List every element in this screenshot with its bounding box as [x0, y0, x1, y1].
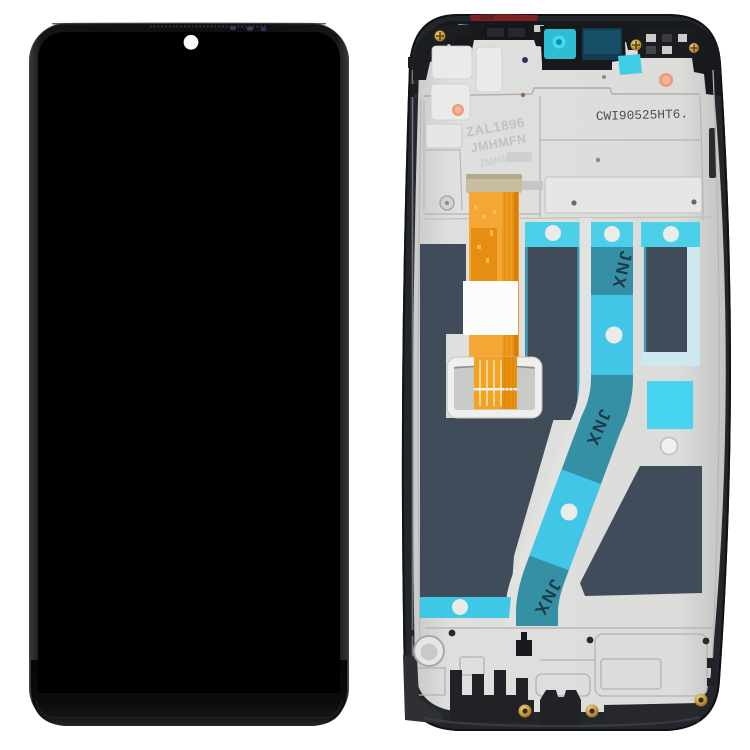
svg-text:CWI90525HT6.: CWI90525HT6.	[596, 107, 689, 124]
